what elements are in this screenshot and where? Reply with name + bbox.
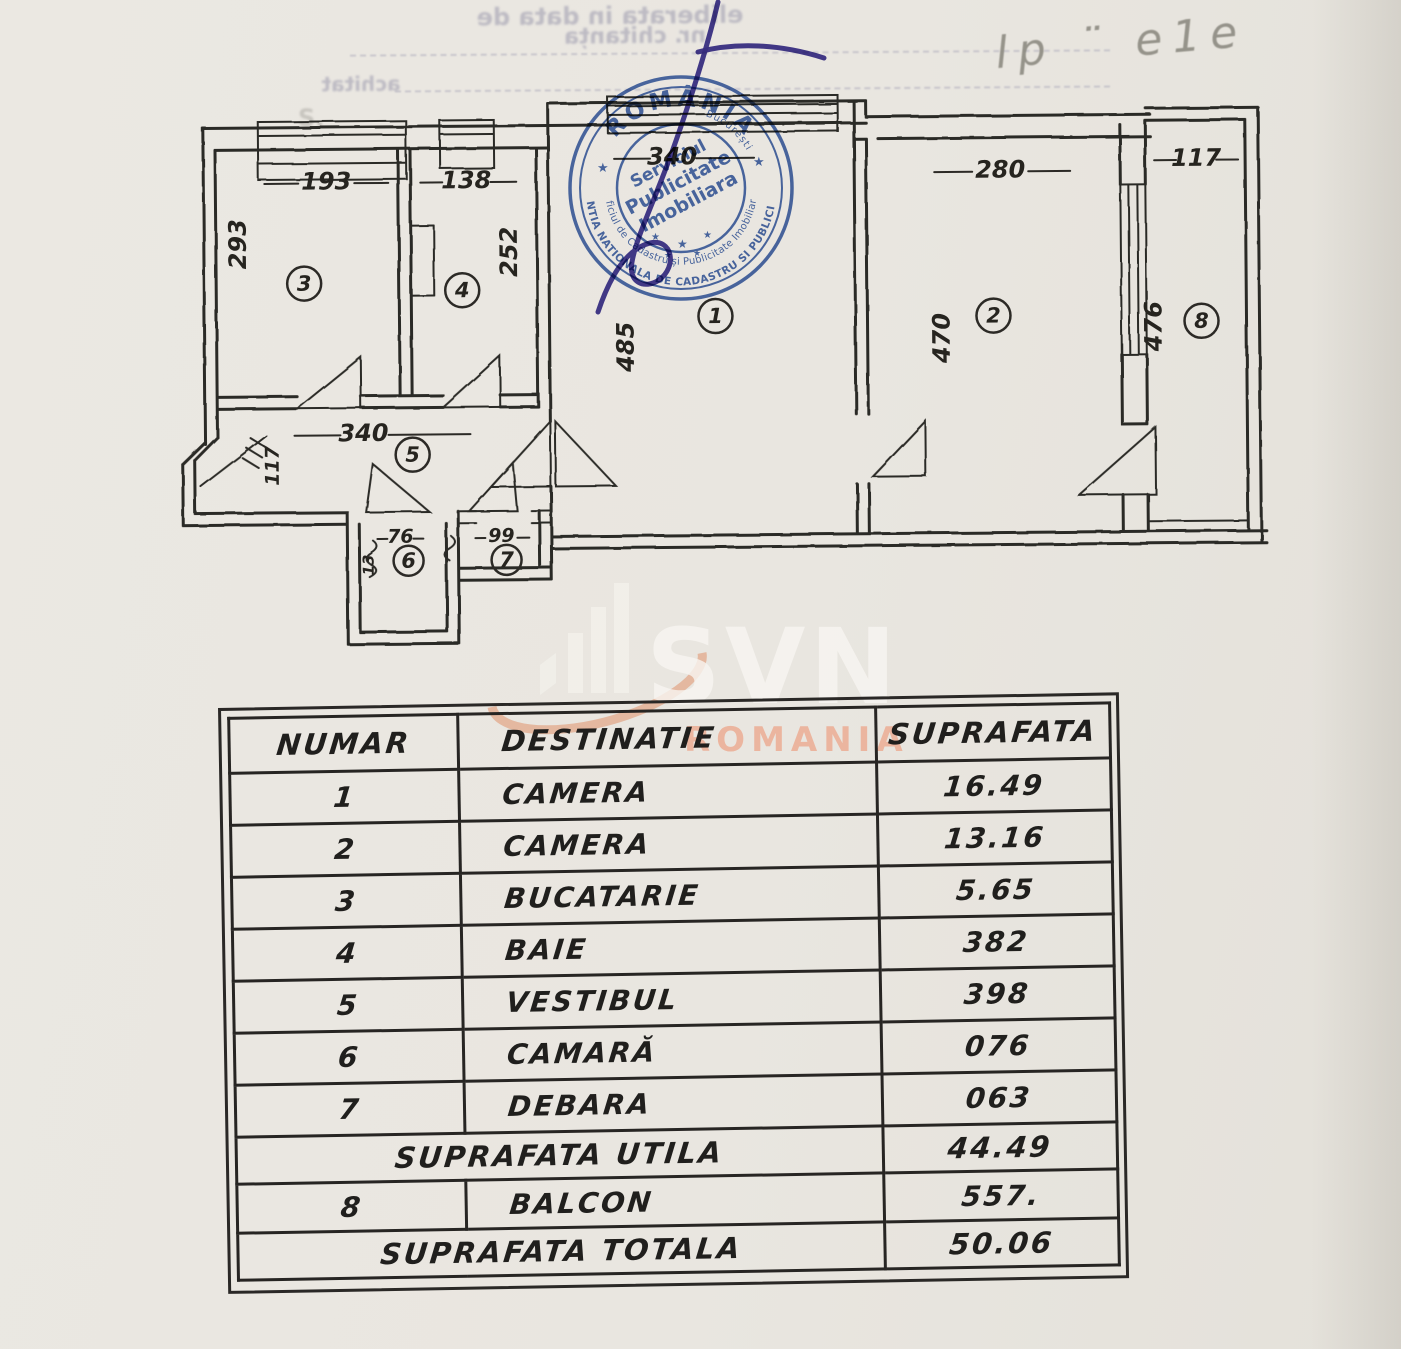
svg-text:2: 2 [986,304,1001,328]
cadastral-scan-page: eliberata in data de nr. chitanța achita… [0,0,1401,1349]
svg-text:3: 3 [297,272,312,296]
room-marker-7: 7 [491,545,521,575]
pencil-note: lp ¨ e1e [993,0,1316,79]
col-header-suprafata: SUPRAFATA [887,714,1099,752]
svg-text:6: 6 [401,549,416,573]
col-header-numar: NUMAR [275,726,413,762]
dim-340-vestibul: 340 [338,419,388,447]
svg-text:8: 8 [1194,309,1209,333]
svg-text:7: 7 [499,548,514,572]
room-marker-5: 5 [396,438,430,472]
room-marker-8: 8 [1184,304,1218,338]
dim-99: 99 [488,525,515,547]
dim-280: 280 [975,155,1025,183]
room-marker-2: 2 [976,298,1010,332]
dim-476: 476 [1139,301,1167,352]
areas-table: NUMAR DESTINATIE SUPRAFATA 1 CAMERA 16.4… [218,692,1129,1294]
signature-ink [540,0,920,340]
room-marker-6: 6 [393,546,423,576]
dim-293: 293 [224,219,252,269]
room-marker-4: 4 [445,273,479,307]
dim-117-balcon: 117 [1171,144,1222,172]
svg-text:4: 4 [454,278,470,302]
dim-138: 138 [441,166,491,194]
col-header-destinatie: DESTINATIE [500,720,718,758]
svg-text:5: 5 [405,443,420,467]
dim-13: 13 [360,555,378,576]
room-marker-3: 3 [287,266,321,300]
dim-117-intrare: 117 [262,445,284,486]
dim-252: 252 [495,227,523,277]
scan-edge-shadow [1311,0,1401,1349]
dim-193: 193 [301,167,351,195]
dim-470: 470 [927,313,955,364]
